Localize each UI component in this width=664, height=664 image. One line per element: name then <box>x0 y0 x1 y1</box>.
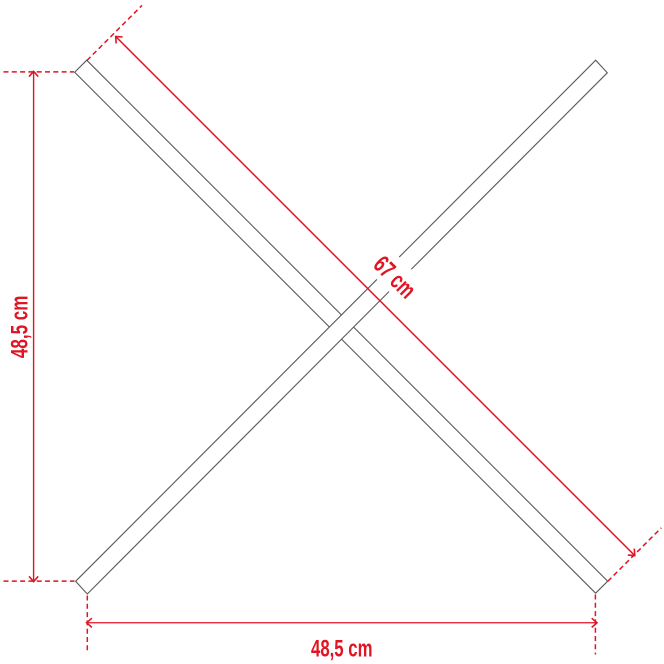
svg-text:48,5 cm: 48,5 cm <box>6 296 33 359</box>
svg-text:48,5 cm: 48,5 cm <box>311 635 373 662</box>
